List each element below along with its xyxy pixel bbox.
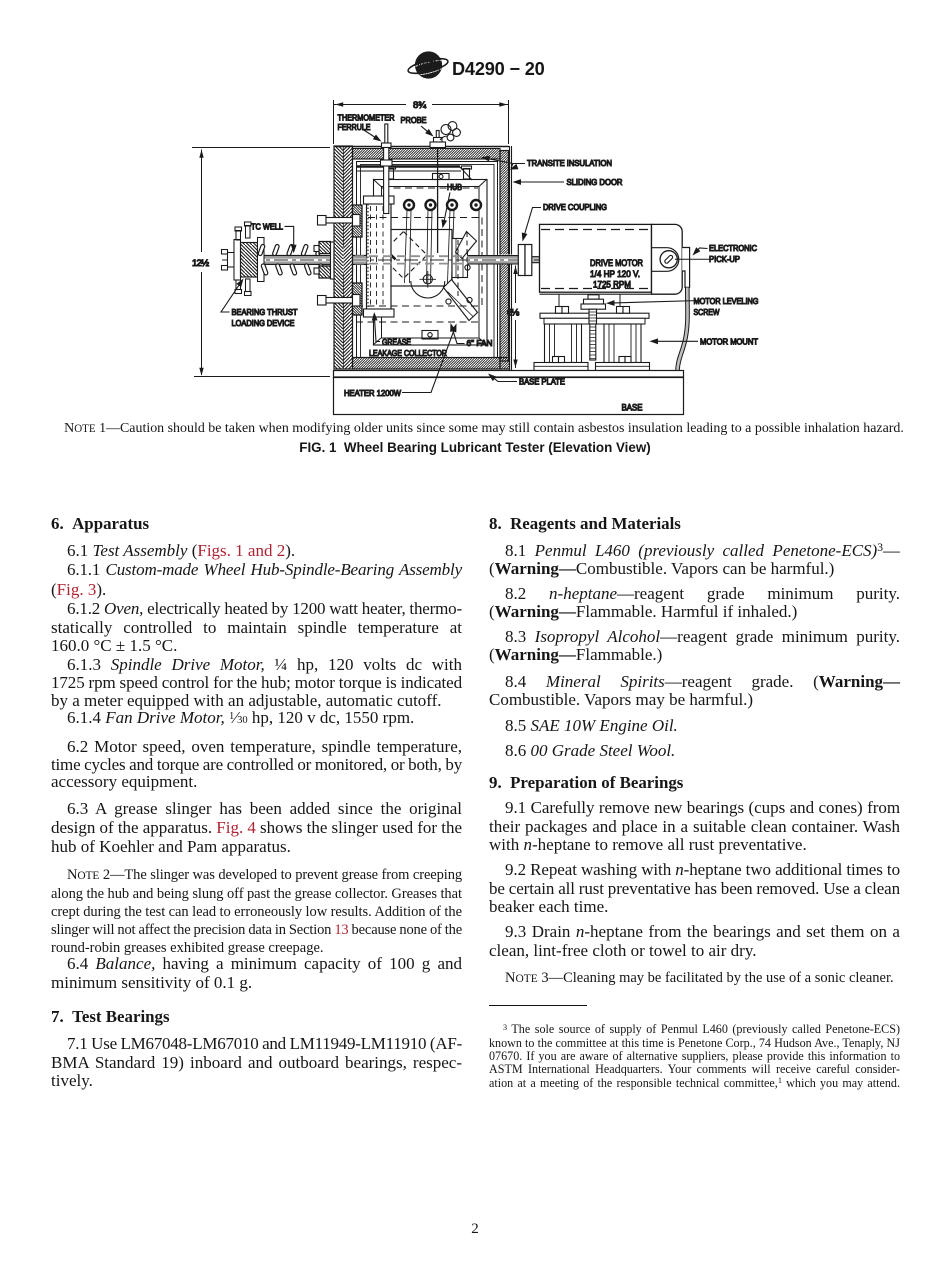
svg-text:TC WELL: TC WELL <box>251 223 283 232</box>
svg-text:HEATER 1200W: HEATER 1200W <box>344 389 401 398</box>
svg-text:LOADING DEVICE: LOADING DEVICE <box>232 319 295 328</box>
svg-text:DRIVE COUPLING: DRIVE COUPLING <box>543 203 607 212</box>
svg-text:TRANSITE INSULATION: TRANSITE INSULATION <box>527 159 612 168</box>
svg-text:12½: 12½ <box>192 258 209 269</box>
svg-text:PROBE: PROBE <box>401 116 427 125</box>
svg-text:SLIDING DOOR: SLIDING DOOR <box>567 178 623 187</box>
svg-text:GREASE: GREASE <box>382 338 411 347</box>
svg-text:6" FAN: 6" FAN <box>467 339 493 348</box>
svg-text:1/4 HP 120 V.: 1/4 HP 120 V. <box>590 269 640 279</box>
svg-text:6⅛: 6⅛ <box>507 308 519 319</box>
svg-text:THERMOMETER: THERMOMETER <box>338 114 395 123</box>
svg-text:1725 RPM: 1725 RPM <box>593 280 631 290</box>
svg-text:DRIVE MOTOR: DRIVE MOTOR <box>590 258 643 268</box>
svg-text:BEARING THRUST: BEARING THRUST <box>232 308 298 317</box>
svg-text:MOTOR LEVELING: MOTOR LEVELING <box>694 297 759 306</box>
svg-text:MOTOR MOUNT: MOTOR MOUNT <box>700 338 758 347</box>
svg-text:ELECTRONIC: ELECTRONIC <box>709 244 757 253</box>
svg-text:BASE: BASE <box>622 403 643 413</box>
svg-text:PICK-UP: PICK-UP <box>709 255 740 264</box>
svg-text:8¾: 8¾ <box>413 100 427 111</box>
svg-text:LEAKAGE COLLECTOR: LEAKAGE COLLECTOR <box>369 349 447 358</box>
svg-text:BASE PLATE: BASE PLATE <box>519 378 565 387</box>
svg-text:SCREW: SCREW <box>694 308 720 317</box>
svg-text:FERRULE: FERRULE <box>338 123 371 132</box>
svg-text:HUB: HUB <box>447 183 462 192</box>
